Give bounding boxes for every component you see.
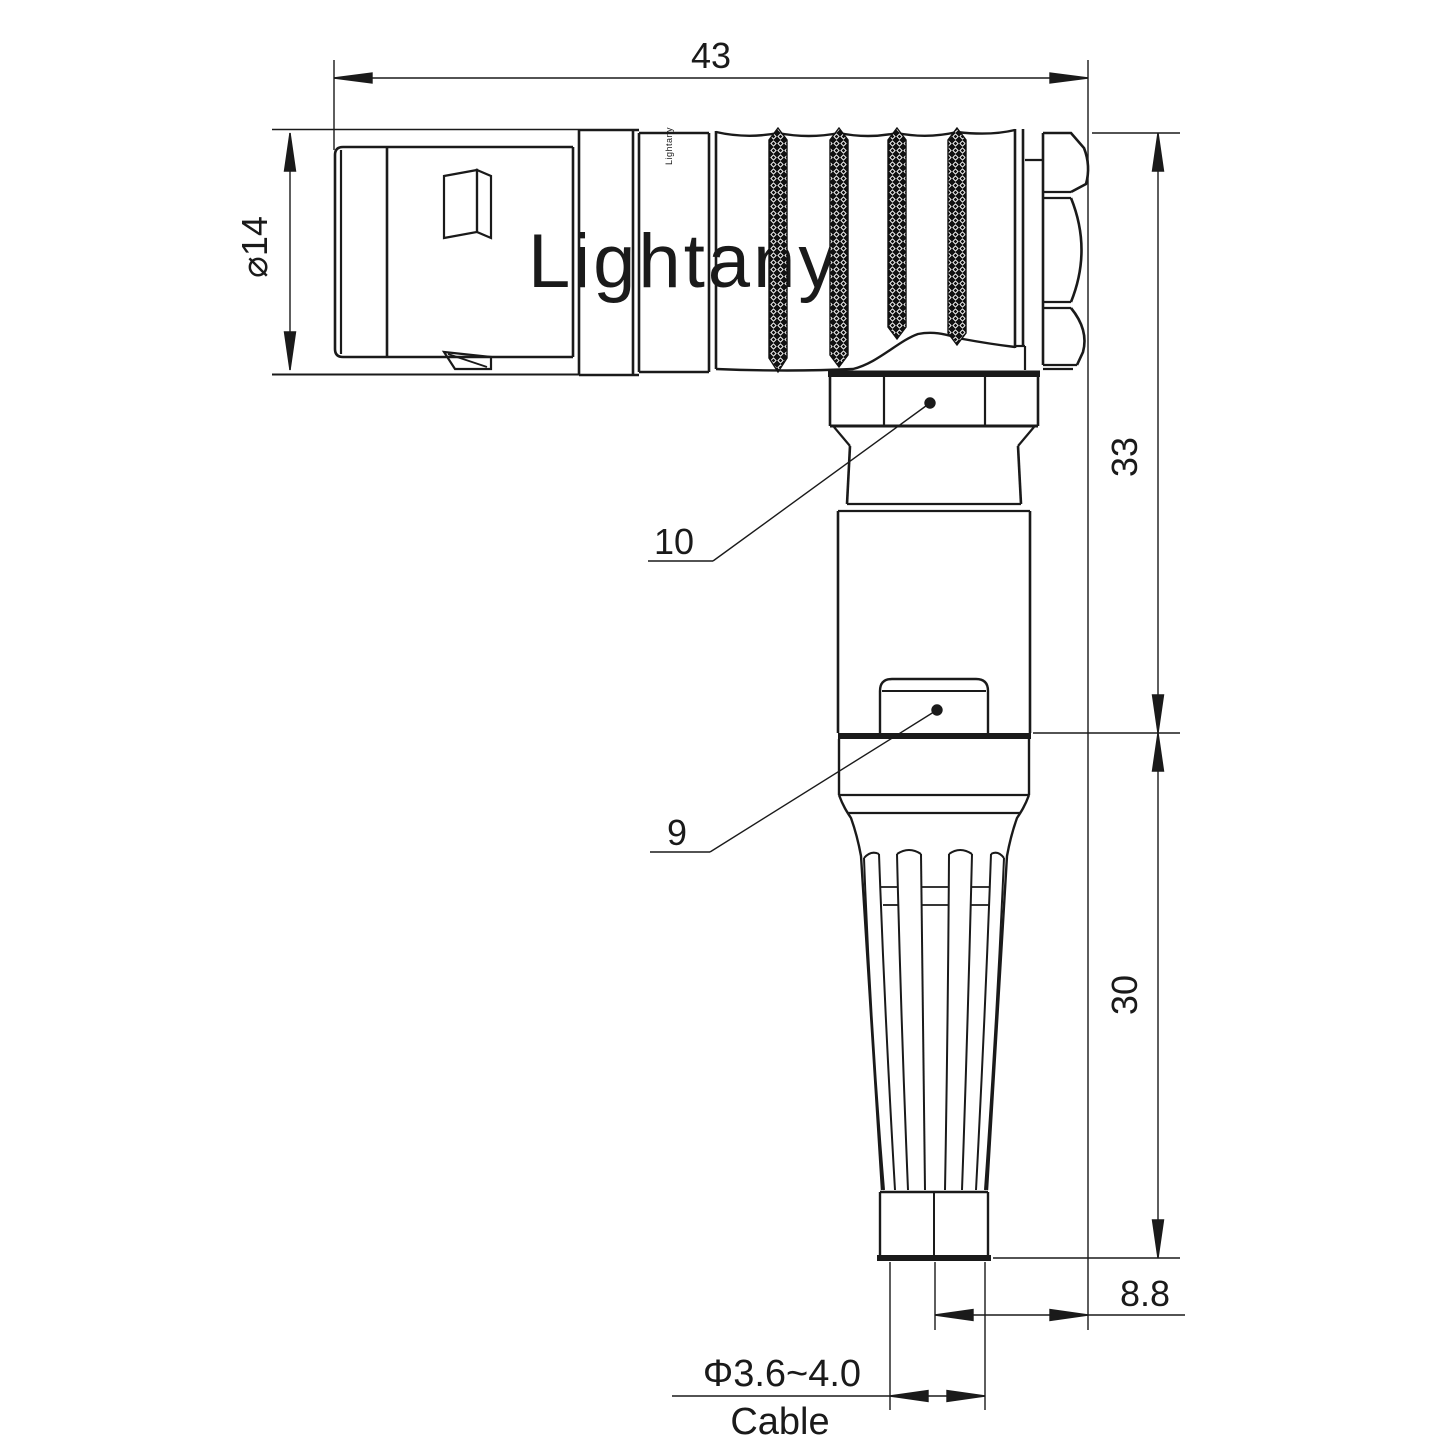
arrowhead-right-icon [1050,1310,1088,1321]
ring-left [847,446,850,504]
dim-upper-height: 33 [1092,133,1180,733]
gland-nut-top-lobe [1043,133,1088,192]
arrowhead-down-icon [1153,1220,1164,1258]
grip-bottom-edge-elbow [716,333,1015,371]
strain-relief-boot [839,739,1029,1190]
knurl-band [769,128,787,372]
fin-top [949,850,972,854]
watermark-text: Lightany [528,219,839,304]
taper-right [1018,427,1034,446]
fin-edge [985,858,1004,1190]
arrowhead-left-icon [890,1391,928,1402]
arrowhead-down-icon [1153,695,1164,733]
gland-nut [1015,133,1088,370]
knurl-band [830,128,848,367]
connector-vertical-tube [828,371,1040,740]
arrowhead-up-icon [1153,133,1164,171]
connector-dimension-drawing: Lightany Lightany [0,0,1440,1440]
leader-release-sleeve: 9 [650,705,942,853]
technical-drawing-page: Lightany Lightany [0,0,1440,1440]
part-marker-dot [925,398,935,408]
body-bottom-bar [838,733,1031,739]
gland-nut-mid-lobe [1071,198,1082,302]
arrowhead-right-icon [947,1391,985,1402]
arrowhead-down-icon [285,332,296,370]
taper-left [834,427,850,446]
gland-nut-bottom-lobe [1071,308,1085,365]
dim-cable-diameter: Φ3.6~4.0 Cable [672,1262,985,1440]
dim-text-cable-offset: 8.8 [1120,1273,1170,1314]
fin-top [991,853,1004,858]
knurl-band [948,128,966,345]
dim-text-overall-length: 43 [691,35,731,76]
leader-coupling-nut: 10 [648,398,935,562]
dim-cable-offset: 8.8 [935,1262,1185,1330]
grip-top-edge [716,130,1015,136]
cable-label: Cable [730,1401,829,1440]
part-label-release-sleeve: 9 [667,812,687,853]
brand-mark: Lightany [664,127,674,165]
dim-text-lower-height: 30 [1104,975,1145,1015]
keying-tab-side [477,170,491,238]
arrowhead-up-icon [1153,733,1164,771]
keying-tab-front [444,170,477,238]
knurl-band [888,128,906,339]
boot-outer-left [839,795,882,1190]
cable-block-bottom-bar [877,1255,991,1261]
arrowhead-left-icon [334,73,372,83]
arrowhead-left-icon [935,1310,973,1321]
fin-top [897,850,921,854]
leader-line [713,403,930,561]
cable-end [877,1192,991,1261]
part-marker-dot [932,705,942,715]
boot-outer-right [987,795,1029,1190]
dim-text-cable-diameter: Φ3.6~4.0 [703,1353,861,1395]
leader-line [710,710,937,852]
arrowhead-right-icon [1050,73,1088,83]
fin-edge [962,854,972,1190]
part-label-coupling-nut: 10 [654,521,694,562]
hex-nut-top-bar [828,371,1040,378]
dim-text-shell-diameter: ⌀14 [234,216,275,278]
ring-right [1018,446,1021,504]
fin-top [864,853,879,858]
dim-text-upper-height: 33 [1104,437,1145,477]
arrowhead-up-icon [285,133,296,171]
